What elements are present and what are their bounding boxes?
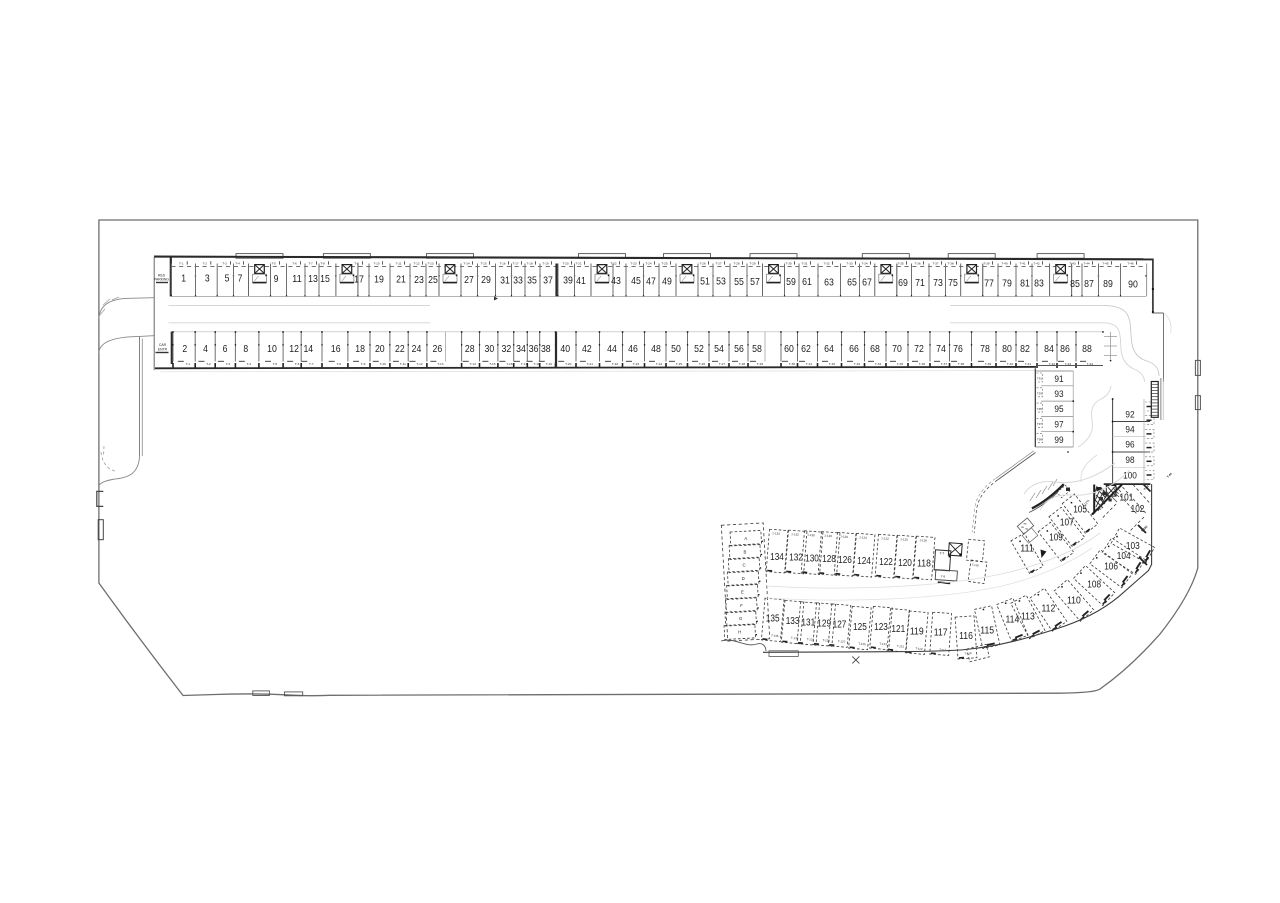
- svg-text:T-15: T-15: [489, 362, 495, 366]
- svg-text:T-30: T-30: [785, 261, 791, 265]
- svg-text:T-26: T-26: [699, 261, 705, 265]
- svg-text:T95: T95: [1037, 407, 1042, 411]
- svg-text:8: 8: [243, 344, 248, 355]
- svg-text:71: 71: [915, 278, 925, 289]
- svg-text:T-8: T-8: [336, 362, 341, 366]
- svg-text:127: 127: [833, 619, 847, 630]
- svg-text:74: 74: [936, 344, 946, 355]
- svg-text:5: 5: [225, 274, 230, 285]
- svg-text:70: 70: [892, 344, 902, 355]
- svg-text:17: 17: [354, 274, 364, 285]
- svg-text:35: 35: [527, 276, 537, 287]
- svg-text:ENTR: ENTR: [158, 347, 168, 351]
- svg-text:97: 97: [1054, 418, 1063, 429]
- svg-text:T-35: T-35: [897, 261, 903, 265]
- svg-text:26: 26: [433, 344, 443, 355]
- svg-text:105: 105: [1073, 504, 1087, 515]
- svg-text:116: 116: [959, 631, 973, 642]
- svg-text:T91: T91: [1037, 376, 1042, 380]
- svg-text:62: 62: [801, 344, 811, 355]
- svg-text:15: 15: [320, 274, 330, 285]
- svg-text:T-27: T-27: [719, 362, 725, 366]
- svg-text:58: 58: [752, 344, 762, 355]
- svg-text:T-21: T-21: [575, 261, 581, 265]
- svg-text:10: 10: [267, 344, 277, 355]
- svg-text:T-17: T-17: [521, 362, 527, 366]
- svg-text:T-38: T-38: [958, 362, 964, 366]
- svg-text:T-10: T-10: [380, 362, 386, 366]
- svg-text:T-36: T-36: [919, 362, 925, 366]
- svg-text:T-1: T-1: [186, 362, 191, 366]
- svg-text:77: 77: [984, 278, 994, 289]
- svg-text:104: 104: [1117, 551, 1131, 562]
- svg-text:1-122: 1-122: [881, 536, 889, 541]
- svg-text:90: 90: [1128, 279, 1138, 290]
- svg-text:49: 49: [662, 276, 672, 287]
- svg-text:T-14: T-14: [470, 362, 476, 366]
- svg-text:18: 18: [355, 344, 365, 355]
- svg-text:118: 118: [917, 559, 931, 570]
- svg-text:1-132: 1-132: [791, 532, 799, 537]
- svg-text:T-27: T-27: [715, 261, 721, 265]
- svg-text:113: 113: [1021, 611, 1035, 622]
- svg-text:28: 28: [465, 344, 475, 355]
- svg-text:72: 72: [914, 344, 924, 355]
- svg-text:T-4: T-4: [247, 362, 252, 366]
- svg-text:T-31: T-31: [806, 362, 812, 366]
- svg-text:T-129: T-129: [822, 638, 830, 643]
- svg-text:95: 95: [1054, 403, 1063, 414]
- svg-text:T-8: T-8: [320, 261, 325, 265]
- svg-text:T-29: T-29: [757, 362, 763, 366]
- svg-text:81: 81: [1020, 279, 1030, 290]
- svg-text:67: 67: [862, 278, 872, 289]
- svg-text:98: 98: [1125, 454, 1134, 465]
- svg-text:108: 108: [1087, 579, 1101, 590]
- svg-text:T-20: T-20: [565, 362, 571, 366]
- svg-text:83: 83: [1034, 279, 1044, 290]
- svg-text:6: 6: [223, 344, 228, 355]
- svg-text:T97: T97: [1037, 422, 1042, 426]
- svg-text:42: 42: [582, 344, 592, 355]
- svg-text:38: 38: [541, 344, 551, 355]
- svg-text:27: 27: [464, 275, 474, 286]
- svg-text:T-23: T-23: [633, 362, 639, 366]
- svg-text:T-125: T-125: [858, 642, 866, 647]
- svg-text:53: 53: [716, 277, 726, 288]
- svg-text:121: 121: [891, 624, 905, 635]
- svg-text:112: 112: [1042, 603, 1056, 614]
- svg-text:T-31: T-31: [801, 261, 807, 265]
- svg-text:41: 41: [576, 276, 586, 287]
- svg-text:T-3: T-3: [222, 261, 227, 265]
- svg-text:79: 79: [1002, 279, 1012, 290]
- svg-text:131: 131: [801, 617, 815, 628]
- svg-text:100: 100: [1123, 470, 1137, 481]
- svg-text:94: 94: [1125, 424, 1134, 435]
- svg-text:103: 103: [1126, 541, 1140, 552]
- svg-text:126: 126: [838, 555, 852, 566]
- svg-text:T-13: T-13: [437, 362, 443, 366]
- svg-text:T-28: T-28: [733, 261, 739, 265]
- svg-text:T-8: T-8: [941, 575, 945, 579]
- svg-text:T-37: T-37: [932, 261, 938, 265]
- svg-text:T-13: T-13: [427, 261, 433, 265]
- svg-text:1-118: 1-118: [919, 538, 927, 543]
- svg-text:64: 64: [824, 344, 834, 355]
- svg-text:T-21: T-21: [587, 362, 593, 366]
- svg-text:29: 29: [481, 275, 491, 286]
- svg-text:T-36: T-36: [914, 261, 920, 265]
- svg-text:T-44: T-44: [1083, 261, 1089, 265]
- svg-text:115: 115: [980, 625, 994, 636]
- svg-text:73: 73: [933, 278, 943, 289]
- svg-text:T-7: T-7: [309, 362, 314, 366]
- svg-text:T-29: T-29: [749, 261, 755, 265]
- svg-text:19: 19: [374, 275, 384, 286]
- svg-text:34: 34: [516, 344, 526, 355]
- svg-text:12: 12: [289, 344, 299, 355]
- svg-text:T-35: T-35: [897, 362, 903, 366]
- svg-text:37: 37: [543, 276, 553, 287]
- svg-text:T-2: T-2: [206, 362, 211, 366]
- svg-text:76: 76: [953, 344, 963, 355]
- svg-text:110: 110: [1067, 596, 1081, 607]
- svg-text:50: 50: [671, 344, 681, 355]
- svg-text:T-32: T-32: [823, 261, 829, 265]
- svg-text:T-26: T-26: [699, 362, 705, 366]
- svg-text:C: C: [743, 563, 746, 568]
- svg-text:T-39: T-39: [983, 261, 989, 265]
- svg-text:80: 80: [1002, 344, 1012, 355]
- svg-text:65: 65: [847, 278, 857, 289]
- svg-text:T-123: T-123: [879, 642, 887, 647]
- svg-text:T-38: T-38: [947, 261, 953, 265]
- svg-text:84: 84: [1044, 344, 1054, 355]
- svg-text:T-9: T-9: [354, 261, 359, 265]
- svg-text:102: 102: [1131, 504, 1145, 515]
- svg-text:114: 114: [1006, 614, 1020, 625]
- svg-text:125: 125: [853, 622, 867, 633]
- svg-text:T-6: T-6: [292, 261, 297, 265]
- svg-text:B: B: [743, 549, 746, 554]
- svg-text:T-11: T-11: [400, 362, 406, 366]
- svg-text:47: 47: [646, 276, 656, 287]
- svg-text:CAR: CAR: [159, 343, 167, 347]
- svg-text:T-17: T-17: [512, 261, 518, 265]
- svg-text:25: 25: [428, 275, 438, 286]
- svg-text:101: 101: [1120, 492, 1134, 503]
- svg-text:T-7: T-7: [308, 261, 313, 265]
- svg-text:x2: x2: [1099, 507, 1102, 511]
- svg-text:54: 54: [714, 344, 724, 355]
- svg-text:48: 48: [651, 344, 661, 355]
- svg-text:T-121: T-121: [897, 644, 905, 649]
- svg-text:1: 1: [181, 273, 186, 284]
- svg-text:T-127: T-127: [838, 639, 846, 644]
- svg-text:40: 40: [560, 344, 570, 355]
- svg-text:T-22: T-22: [610, 261, 616, 265]
- svg-text:T-34: T-34: [861, 261, 867, 265]
- svg-text:23: 23: [414, 275, 424, 286]
- svg-text:3: 3: [205, 274, 210, 285]
- svg-text:1-120: 1-120: [900, 537, 908, 542]
- svg-text:T93: T93: [1037, 392, 1042, 396]
- svg-text:82: 82: [1020, 344, 1030, 355]
- svg-text:86: 86: [1060, 344, 1070, 355]
- svg-text:33: 33: [513, 275, 523, 286]
- svg-text:63: 63: [824, 277, 834, 288]
- svg-text:46: 46: [628, 344, 638, 355]
- svg-text:T-23: T-23: [630, 261, 636, 265]
- svg-text:36: 36: [529, 344, 539, 355]
- svg-text:T-20: T-20: [562, 261, 568, 265]
- svg-text:T-7: T-7: [940, 552, 945, 556]
- svg-text:T-16: T-16: [499, 261, 505, 265]
- svg-text:52: 52: [694, 344, 704, 355]
- svg-text:A: A: [744, 536, 747, 541]
- svg-text:124: 124: [857, 556, 871, 567]
- svg-text:123: 123: [874, 622, 888, 633]
- svg-text:30: 30: [485, 344, 495, 355]
- svg-text:22: 22: [395, 344, 405, 355]
- svg-text:T-24: T-24: [645, 261, 651, 265]
- svg-text:T-10: T-10: [373, 261, 379, 265]
- svg-text:F: F: [740, 603, 743, 608]
- svg-text:106: 106: [1104, 562, 1118, 573]
- svg-text:117: 117: [934, 628, 948, 639]
- svg-text:T-43: T-43: [1069, 261, 1075, 265]
- svg-text:87: 87: [1084, 279, 1094, 290]
- svg-text:T-15: T-15: [480, 261, 486, 265]
- svg-text:T-9: T-9: [361, 362, 366, 366]
- svg-text:1-126: 1-126: [840, 534, 848, 539]
- svg-text:135: 135: [766, 614, 780, 625]
- svg-text:129: 129: [817, 618, 831, 629]
- svg-text:9: 9: [274, 274, 279, 285]
- svg-text:T-30: T-30: [789, 362, 795, 366]
- svg-text:1-124: 1-124: [859, 535, 867, 540]
- svg-text:45: 45: [631, 276, 641, 287]
- svg-text:39: 39: [563, 276, 573, 287]
- svg-text:107: 107: [1060, 518, 1074, 529]
- svg-text:T-37: T-37: [941, 362, 947, 366]
- svg-text:57: 57: [750, 277, 760, 288]
- svg-text:T-116: T-116: [964, 651, 972, 656]
- svg-text:E: E: [741, 589, 744, 594]
- svg-text:122: 122: [879, 557, 893, 568]
- svg-text:91: 91: [1054, 373, 1063, 384]
- svg-text:T99: T99: [1037, 437, 1042, 441]
- svg-text:7: 7: [238, 274, 243, 285]
- svg-text:119: 119: [910, 627, 924, 638]
- svg-text:1-128: 1-128: [824, 534, 832, 539]
- svg-text:T-46: T-46: [1127, 261, 1133, 265]
- svg-text:T-119: T-119: [915, 646, 923, 651]
- svg-text:109: 109: [1049, 533, 1063, 544]
- svg-text:1-130: 1-130: [807, 533, 815, 538]
- svg-text:93: 93: [1054, 388, 1063, 399]
- svg-text:11: 11: [292, 274, 302, 285]
- svg-text:T-1: T-1: [179, 261, 184, 265]
- svg-text:130: 130: [805, 553, 819, 564]
- svg-text:132: 132: [789, 553, 803, 564]
- svg-text:T-34: T-34: [875, 362, 881, 366]
- svg-text:20: 20: [375, 344, 385, 355]
- svg-text:T-4: T-4: [235, 261, 240, 265]
- svg-text:16: 16: [331, 344, 341, 355]
- svg-text:T-28: T-28: [739, 362, 745, 366]
- svg-text:96: 96: [1125, 439, 1134, 450]
- svg-text:T-32: T-32: [829, 362, 835, 366]
- svg-text:60: 60: [784, 344, 794, 355]
- svg-text:T-12: T-12: [416, 362, 422, 366]
- svg-text:T-19: T-19: [542, 261, 548, 265]
- svg-text:T-22: T-22: [612, 362, 618, 366]
- svg-text:75: 75: [948, 278, 958, 289]
- svg-text:T-5: T-5: [271, 261, 276, 265]
- svg-text:78: 78: [980, 344, 990, 355]
- svg-text:T-25: T-25: [676, 362, 682, 366]
- svg-text:T-5: T-5: [273, 362, 278, 366]
- svg-text:H: H: [738, 630, 741, 635]
- svg-text:T-19: T-19: [546, 362, 552, 366]
- svg-text:51: 51: [700, 277, 710, 288]
- svg-text:111: 111: [1020, 544, 1034, 555]
- svg-text:31: 31: [500, 275, 510, 286]
- svg-text:T-24: T-24: [656, 362, 662, 366]
- svg-text:T-135: T-135: [771, 633, 779, 638]
- svg-text:99: 99: [1054, 434, 1063, 445]
- svg-text:4: 4: [203, 344, 208, 355]
- svg-text:134: 134: [770, 552, 784, 563]
- svg-text:T-45: T-45: [1102, 261, 1108, 265]
- svg-text:T-18: T-18: [526, 261, 532, 265]
- svg-text:89: 89: [1103, 279, 1113, 290]
- svg-text:T-2: T-2: [203, 261, 208, 265]
- svg-text:61: 61: [802, 277, 812, 288]
- svg-text:T-40: T-40: [1001, 261, 1007, 265]
- svg-text:128: 128: [822, 554, 836, 565]
- svg-text:1-134: 1-134: [772, 531, 780, 536]
- svg-text:14: 14: [303, 344, 313, 355]
- svg-text:T-33: T-33: [854, 362, 860, 366]
- svg-text:56: 56: [734, 344, 744, 355]
- svg-text:D: D: [742, 576, 745, 581]
- svg-text:T-39: T-39: [985, 362, 991, 366]
- svg-text:2: 2: [182, 344, 187, 355]
- svg-text:21: 21: [396, 275, 406, 286]
- svg-text:T-42: T-42: [1033, 261, 1039, 265]
- svg-text:85: 85: [1070, 279, 1080, 290]
- svg-text:PARKING: PARKING: [154, 278, 169, 282]
- svg-text:43: 43: [611, 276, 621, 287]
- svg-text:24: 24: [412, 344, 422, 355]
- svg-text:T-41: T-41: [1019, 261, 1025, 265]
- svg-text:T-3: T-3: [226, 362, 231, 366]
- svg-text:T-41: T-41: [1025, 362, 1031, 366]
- svg-text:59: 59: [786, 277, 796, 288]
- svg-text:T-11: T-11: [396, 261, 402, 265]
- svg-text:T-16: T-16: [506, 362, 512, 366]
- svg-text:44: 44: [607, 344, 617, 355]
- svg-text:66: 66: [849, 344, 859, 355]
- svg-text:T-33: T-33: [846, 261, 852, 265]
- svg-text:92: 92: [1125, 408, 1134, 419]
- svg-text:133: 133: [786, 616, 800, 627]
- svg-text:88: 88: [1082, 344, 1092, 355]
- svg-text:13: 13: [308, 274, 318, 285]
- svg-text:120: 120: [898, 558, 912, 569]
- svg-text:T-14: T-14: [463, 261, 469, 265]
- svg-text:32: 32: [502, 344, 512, 355]
- svg-text:T-6: T-6: [295, 362, 300, 366]
- svg-text:69: 69: [898, 278, 908, 289]
- svg-text:T-40: T-40: [1007, 362, 1013, 366]
- svg-text:T-25: T-25: [661, 261, 667, 265]
- svg-text:T-12: T-12: [413, 261, 419, 265]
- svg-text:55: 55: [734, 277, 744, 288]
- svg-text:68: 68: [870, 344, 880, 355]
